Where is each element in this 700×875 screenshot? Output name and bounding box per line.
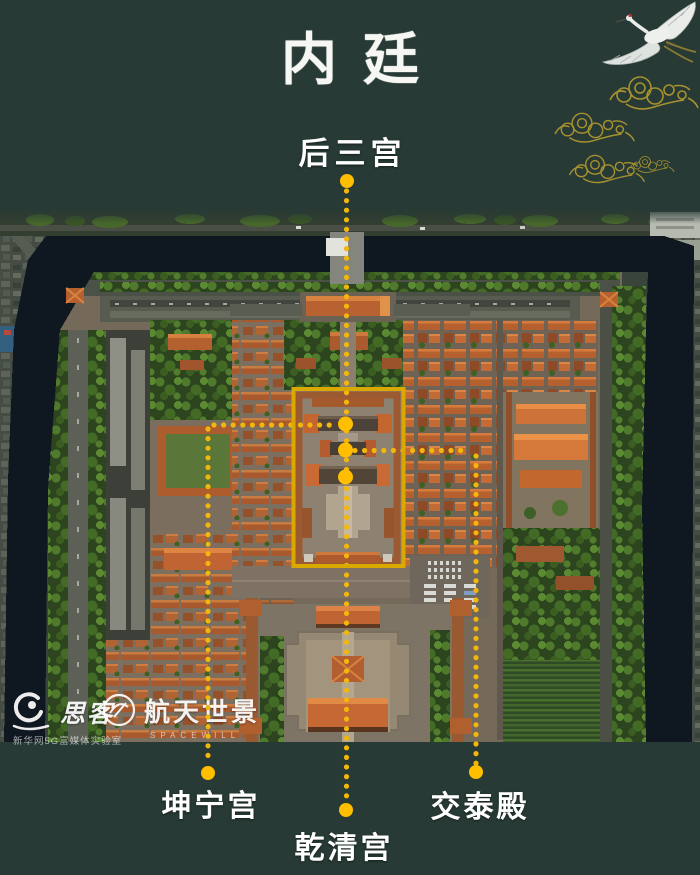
label-qianqinggong: 乾清宫 (295, 823, 394, 867)
spacewill-wordmark: 航天世景 (144, 692, 260, 729)
cloud-icon (570, 155, 645, 182)
spacewill-logo-icon (100, 691, 138, 729)
watermark-spacewill: 航天世景 (100, 691, 260, 729)
photo-top-fade (0, 208, 700, 224)
rear-three-palaces (294, 390, 402, 566)
crane-clouds-art (540, 0, 700, 200)
outer-court (240, 598, 472, 742)
infographic-page: 内廷 后三宫 坤宁宫 乾清宫 交泰殿 思客 新华网5G富媒体实验室 航天世景 S… (0, 0, 700, 875)
callout-dot-label-center (339, 803, 353, 817)
satellite-photo (0, 208, 700, 742)
cloud-icon (610, 77, 698, 109)
sike-subtitle: 新华网5G富媒体实验室 (13, 733, 122, 747)
crane-icon (603, 2, 696, 65)
callout-dot-label-right (469, 765, 483, 779)
cloud-icon (630, 157, 674, 173)
callout-dot-top-label (340, 174, 354, 188)
west-service-zone (48, 330, 160, 742)
sike-logo-icon (8, 690, 54, 734)
watermark-sike: 思客 (8, 690, 114, 734)
cloud-icon (555, 113, 634, 142)
label-kunninggong: 坤宁宫 (162, 781, 261, 825)
spacewill-subtitle: SPACEWILL (150, 731, 240, 740)
label-jiaotaidian: 交泰殿 (431, 782, 530, 826)
callout-dot-label-left (201, 766, 215, 780)
